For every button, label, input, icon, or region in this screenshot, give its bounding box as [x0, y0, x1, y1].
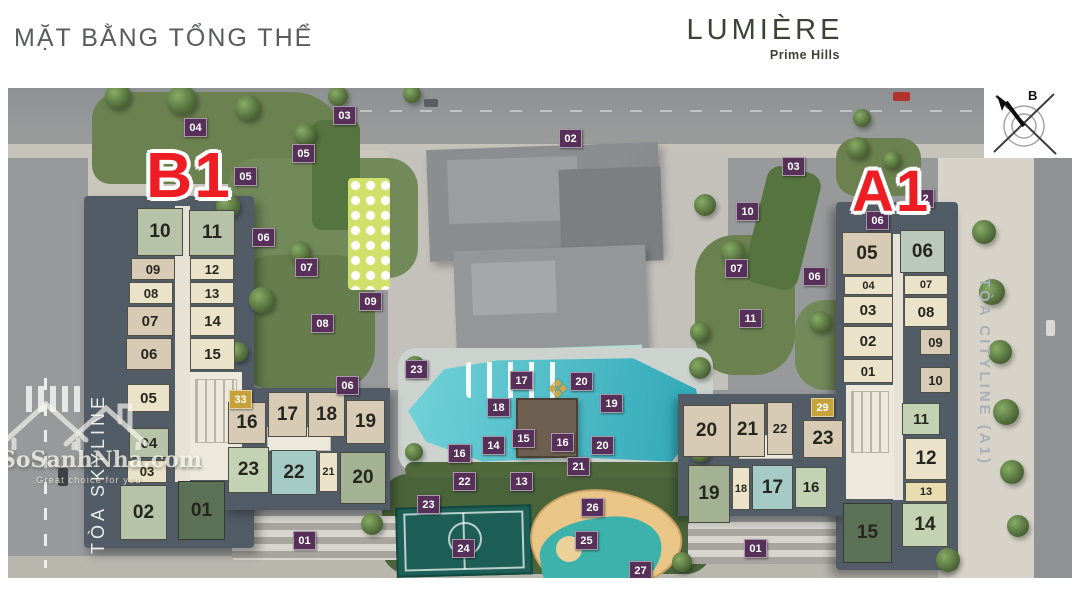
amenity-badge-29: 29 [811, 398, 834, 417]
unit-a1-01: 01 [843, 359, 893, 383]
car [58, 468, 68, 486]
compass-north-label: B [1028, 88, 1037, 103]
unit-a1-18: 18 [732, 467, 750, 510]
tower-a1-label: A1 [852, 158, 930, 225]
unit-a1-08: 08 [904, 297, 948, 327]
unit-b1-05: 05 [127, 384, 170, 412]
car [1046, 320, 1055, 336]
amenity-badge-24: 24 [452, 539, 475, 558]
amenity-badge-04: 04 [184, 118, 207, 137]
car [424, 99, 438, 107]
amenity-badge-06: 06 [803, 267, 826, 286]
tree-icon [1000, 460, 1024, 484]
tree-icon [847, 137, 869, 159]
unit-b1-23: 23 [228, 447, 269, 493]
clubhouse-roof-3-panel [471, 261, 557, 316]
unit-a1-16: 16 [795, 467, 827, 508]
amenity-badge-27: 27 [629, 561, 652, 578]
unit-a1-11: 11 [902, 403, 940, 435]
compass-icon: B [984, 88, 1072, 158]
amenity-badge-09: 09 [359, 292, 382, 311]
unit-a1-17: 17 [752, 465, 793, 510]
tree-icon [405, 443, 423, 461]
amenity-badge-11: 11 [739, 309, 762, 328]
amenity-badge-03: 03 [782, 157, 805, 176]
tower-b1-name: TÒA SKYLINE [88, 326, 109, 554]
tree-icon [690, 322, 710, 342]
amenity-badge-06: 06 [336, 376, 359, 395]
unit-b1-18: 18 [308, 392, 345, 437]
amenity-badge-05: 05 [292, 144, 315, 163]
amenity-badge-05: 05 [234, 167, 257, 186]
unit-b1-13: 13 [190, 282, 234, 304]
unit-a1-21: 21 [730, 403, 765, 457]
mosaic-garden [348, 178, 390, 290]
amenity-badge-16: 16 [551, 433, 574, 452]
amenity-badge-15: 15 [512, 429, 535, 448]
site-plan-page: MẶT BẰNG TỔNG THỂ LUMIÈRE Prime Hills B1… [0, 0, 1080, 601]
unit-a1-10: 10 [920, 367, 951, 393]
amenity-badge-01: 01 [293, 531, 316, 550]
tree-icon [361, 513, 383, 535]
amenity-badge-16: 16 [448, 444, 471, 463]
amenity-badge-13: 13 [510, 472, 533, 491]
tree-icon [249, 287, 275, 313]
unit-b1-04: 04 [129, 428, 169, 458]
amenity-badge-22: 22 [453, 472, 476, 491]
unit-a1-02: 02 [843, 326, 893, 357]
unit-b1-14: 14 [190, 306, 235, 336]
unit-b1-12: 12 [190, 258, 234, 280]
unit-a1-23: 23 [803, 420, 843, 458]
unit-b1-20: 20 [340, 452, 386, 504]
unit-a1-22: 22 [767, 402, 793, 455]
tree-icon [689, 357, 711, 379]
unit-a1-19: 19 [688, 465, 730, 523]
amenity-badge-07: 07 [295, 258, 318, 277]
unit-b1-19: 19 [346, 400, 385, 444]
project-logo: LUMIÈRE Prime Hills [680, 14, 850, 62]
master-plan-rendering: B1 A1 TÒA SKYLINE TÒA CITYLINE (A1) B [8, 88, 1072, 578]
tree-icon [694, 194, 716, 216]
tree-icon [809, 311, 831, 333]
unit-a1-14: 14 [902, 503, 948, 547]
tree-icon [936, 548, 960, 572]
tree-icon [672, 552, 692, 572]
road-dash-left [44, 378, 47, 568]
amenity-badge-03: 03 [333, 106, 356, 125]
unit-b1-22: 22 [271, 450, 317, 495]
unit-b1-11: 11 [189, 210, 235, 256]
unit-b1-21: 21 [319, 452, 338, 492]
unit-b1-08: 08 [129, 282, 173, 304]
road-dash-top [300, 110, 1020, 112]
amenity-badge-06: 06 [252, 228, 275, 247]
amenity-badge-17: 17 [510, 371, 533, 390]
tree-icon [853, 109, 871, 127]
amenity-badge-02: 02 [559, 129, 582, 148]
unit-a1-03: 03 [843, 296, 893, 324]
amenity-badge-25: 25 [575, 531, 598, 550]
unit-a1-12: 12 [905, 438, 947, 480]
amenity-badge-20: 20 [591, 436, 614, 455]
project-logo-name: LUMIÈRE [680, 14, 850, 47]
amenity-badge-19: 19 [600, 394, 623, 413]
unit-a1-09: 09 [920, 329, 951, 355]
unit-b1-07: 07 [127, 306, 173, 336]
tree-icon [294, 123, 316, 145]
amenity-badge-08: 08 [311, 314, 334, 333]
crosswalk [26, 386, 86, 412]
amenity-badge-23: 23 [405, 360, 428, 379]
unit-a1-07: 07 [904, 275, 948, 295]
unit-b1-10: 10 [137, 208, 183, 256]
amenity-badge-10: 10 [736, 202, 759, 221]
amenity-badge-20: 20 [570, 372, 593, 391]
unit-b1-02: 02 [120, 485, 167, 540]
unit-b1-17: 17 [268, 392, 307, 437]
unit-a1-13: 13 [905, 482, 947, 502]
unit-b1-15: 15 [190, 338, 235, 370]
unit-b1-03: 03 [127, 460, 167, 483]
unit-b1-06: 06 [126, 338, 172, 370]
amenity-badge-01: 01 [744, 539, 767, 558]
amenity-badge-23: 23 [417, 495, 440, 514]
unit-a1-15: 15 [843, 503, 892, 563]
plan-world: B1 A1 TÒA SKYLINE TÒA CITYLINE (A1) B [8, 88, 1072, 578]
project-logo-subtitle: Prime Hills [680, 48, 850, 62]
tower-b1-label: B1 [146, 138, 232, 212]
unit-a1-06: 06 [900, 230, 945, 273]
unit-a1-05: 05 [842, 232, 892, 275]
tree-icon [972, 220, 996, 244]
tower-a1-core-hatch [852, 392, 888, 452]
amenity-badge-26: 26 [581, 498, 604, 517]
unit-a1-04: 04 [844, 276, 893, 295]
amenity-badge-14: 14 [482, 436, 505, 455]
page-title: MẶT BẰNG TỔNG THỂ [14, 24, 313, 53]
unit-a1-20: 20 [683, 405, 730, 457]
tree-icon [1007, 515, 1029, 537]
amenity-badge-18: 18 [487, 398, 510, 417]
tree-icon [235, 95, 261, 121]
unit-b1-01: 01 [178, 481, 225, 540]
hedge-pool-south [405, 462, 705, 478]
amenity-badge-33: 33 [229, 390, 252, 409]
car [893, 92, 910, 101]
tree-icon [993, 399, 1019, 425]
tower-a1-corridor [893, 234, 903, 500]
amenity-badge-21: 21 [567, 457, 590, 476]
tower-a1-name: TÒA CITYLINE (A1) [976, 278, 993, 546]
unit-b1-09: 09 [131, 258, 175, 280]
amenity-badge-07: 07 [725, 259, 748, 278]
